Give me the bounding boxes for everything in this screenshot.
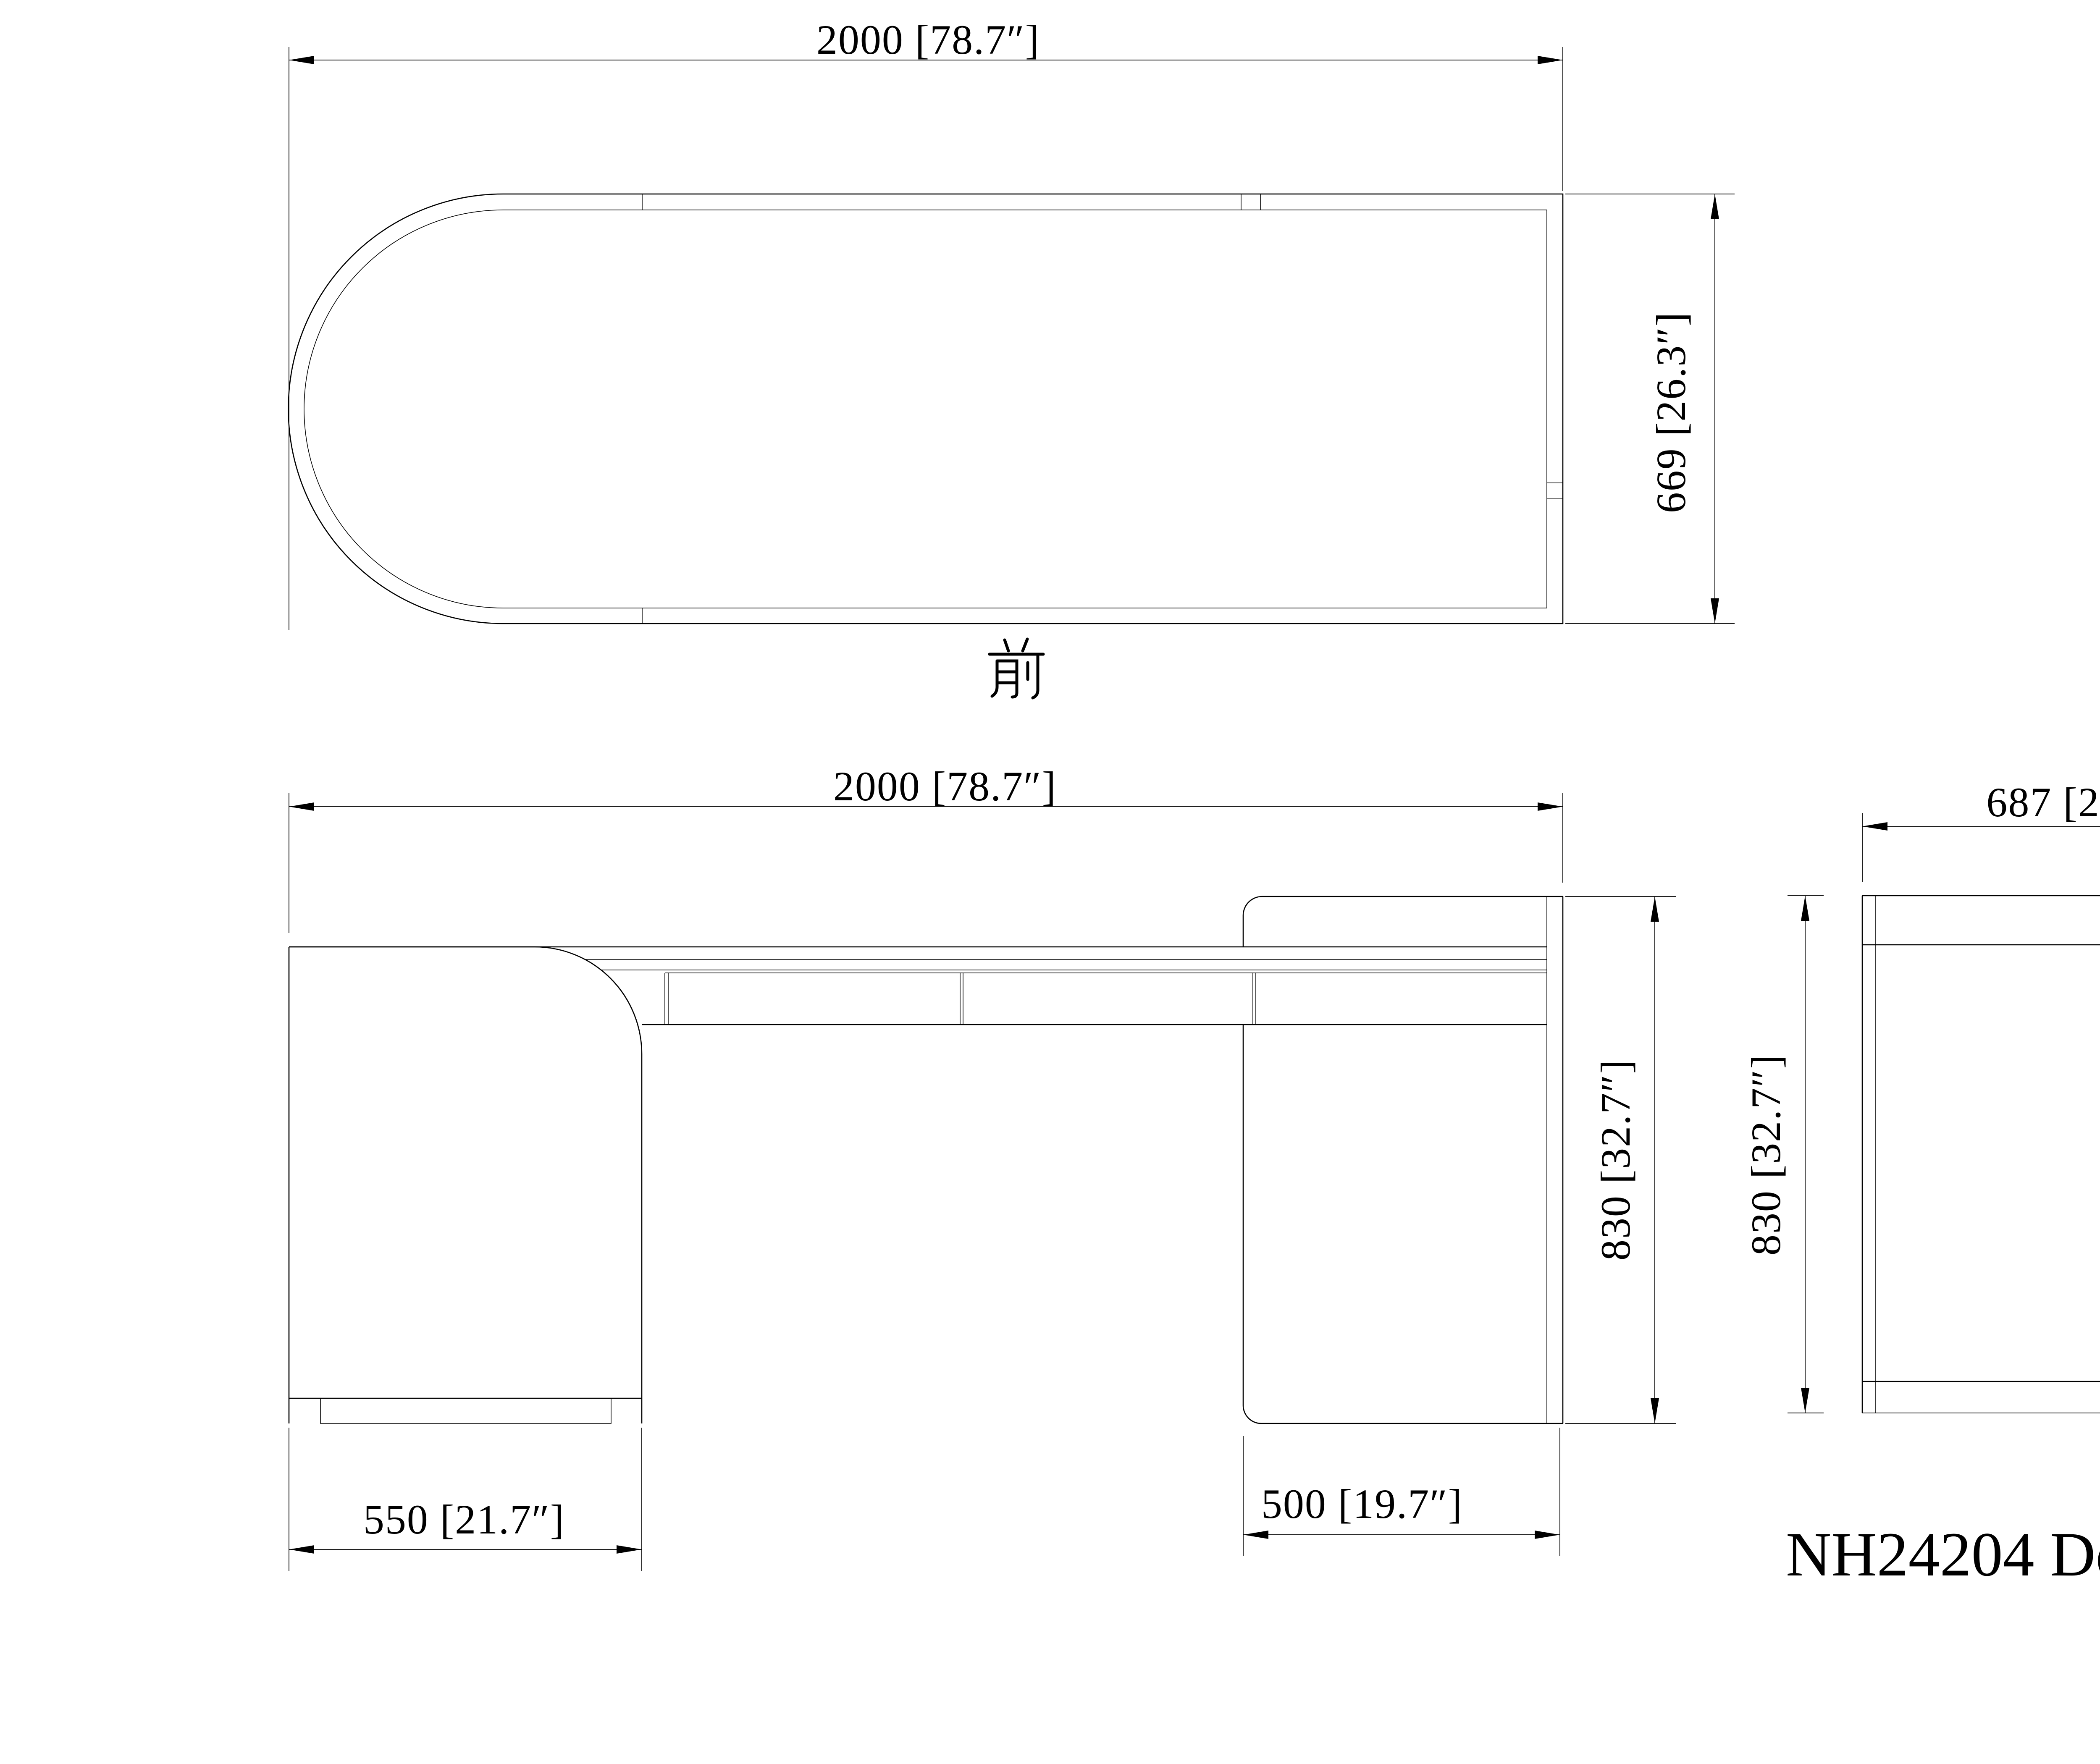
top-view-outline (288, 194, 1563, 624)
side-height-dim-text: 830 [32.7″] (1743, 1054, 1789, 1256)
front-left-pedestal (289, 947, 642, 1423)
front-drawer-dividers (960, 973, 1256, 1025)
side-rear-panel (1862, 896, 2100, 945)
front-rear-panel (1243, 896, 1563, 1423)
drawing-sheet: 2000 [78.7″] 669 [26.3″] 前 (0, 0, 2100, 1764)
side-view (1862, 896, 2100, 1413)
top-depth-arrow-top (1711, 194, 1719, 219)
left-pedestal-arrow-right (617, 1545, 642, 1554)
side-width-arrow-left (1862, 822, 1887, 831)
top-width-arrow-left (289, 56, 314, 64)
front-direction-label-glyph: 前 (990, 639, 1043, 700)
side-width-dim-text: 687 [27″] (1986, 779, 2100, 826)
side-height-arrow-bottom (1801, 1388, 1809, 1413)
side-body (1862, 945, 2100, 1381)
front-width-extension-lines (289, 793, 1563, 933)
top-view-dimensions: 2000 [78.7″] 669 [26.3″] (289, 16, 1735, 630)
top-depth-arrow-bottom (1711, 598, 1719, 624)
front-drawer-band-left-edge (665, 973, 668, 1025)
drawing-title: NH24204 Desk (1786, 1520, 2100, 1589)
cad-drawing: 2000 [78.7″] 669 [26.3″] 前 (0, 0, 2100, 1764)
top-view-ticks (642, 194, 1260, 624)
front-width-arrow-right (1538, 802, 1563, 811)
right-pedestal-arrow-left (1243, 1531, 1268, 1539)
front-view-dimensions: 2000 [78.7″] 830 [32.7″] 550 [21.7″] 500… (289, 763, 1676, 1571)
front-height-arrow-top (1651, 896, 1659, 922)
front-height-dim-text: 830 [32.7″] (1592, 1059, 1639, 1261)
left-pedestal-arrow-left (289, 1545, 314, 1554)
side-plinth (1862, 1381, 2100, 1413)
side-height-arrow-top (1801, 896, 1809, 921)
right-pedestal-arrow-right (1535, 1531, 1560, 1539)
side-view-dimensions: 687 [27″] 830 [32.7″] (1743, 779, 2100, 1413)
top-view (288, 194, 1563, 624)
front-height-arrow-bottom (1651, 1398, 1659, 1423)
top-width-dim-text: 2000 [78.7″] (816, 16, 1040, 63)
side-width-extension-lines (1862, 813, 2100, 935)
top-width-arrow-right (1538, 56, 1563, 64)
front-drawer-band-top (601, 970, 1547, 973)
left-pedestal-dim-text: 550 [21.7″] (363, 1496, 565, 1543)
front-view (289, 896, 1563, 1423)
top-width-extension-lines (289, 47, 1563, 630)
front-left-pedestal-plinth (320, 1398, 611, 1423)
top-view-inner-edge (304, 210, 1547, 608)
front-width-dim-text: 2000 [78.7″] (833, 763, 1057, 810)
top-view-right-seam (1547, 210, 1563, 608)
right-pedestal-dim-text: 500 [19.7″] (1261, 1481, 1463, 1527)
top-depth-dim-text: 669 [26.3″] (1648, 312, 1694, 513)
front-width-arrow-left (289, 802, 314, 811)
front-right-pedestal (1243, 1025, 1547, 1423)
side-height-extension-lines (1788, 896, 1824, 1413)
